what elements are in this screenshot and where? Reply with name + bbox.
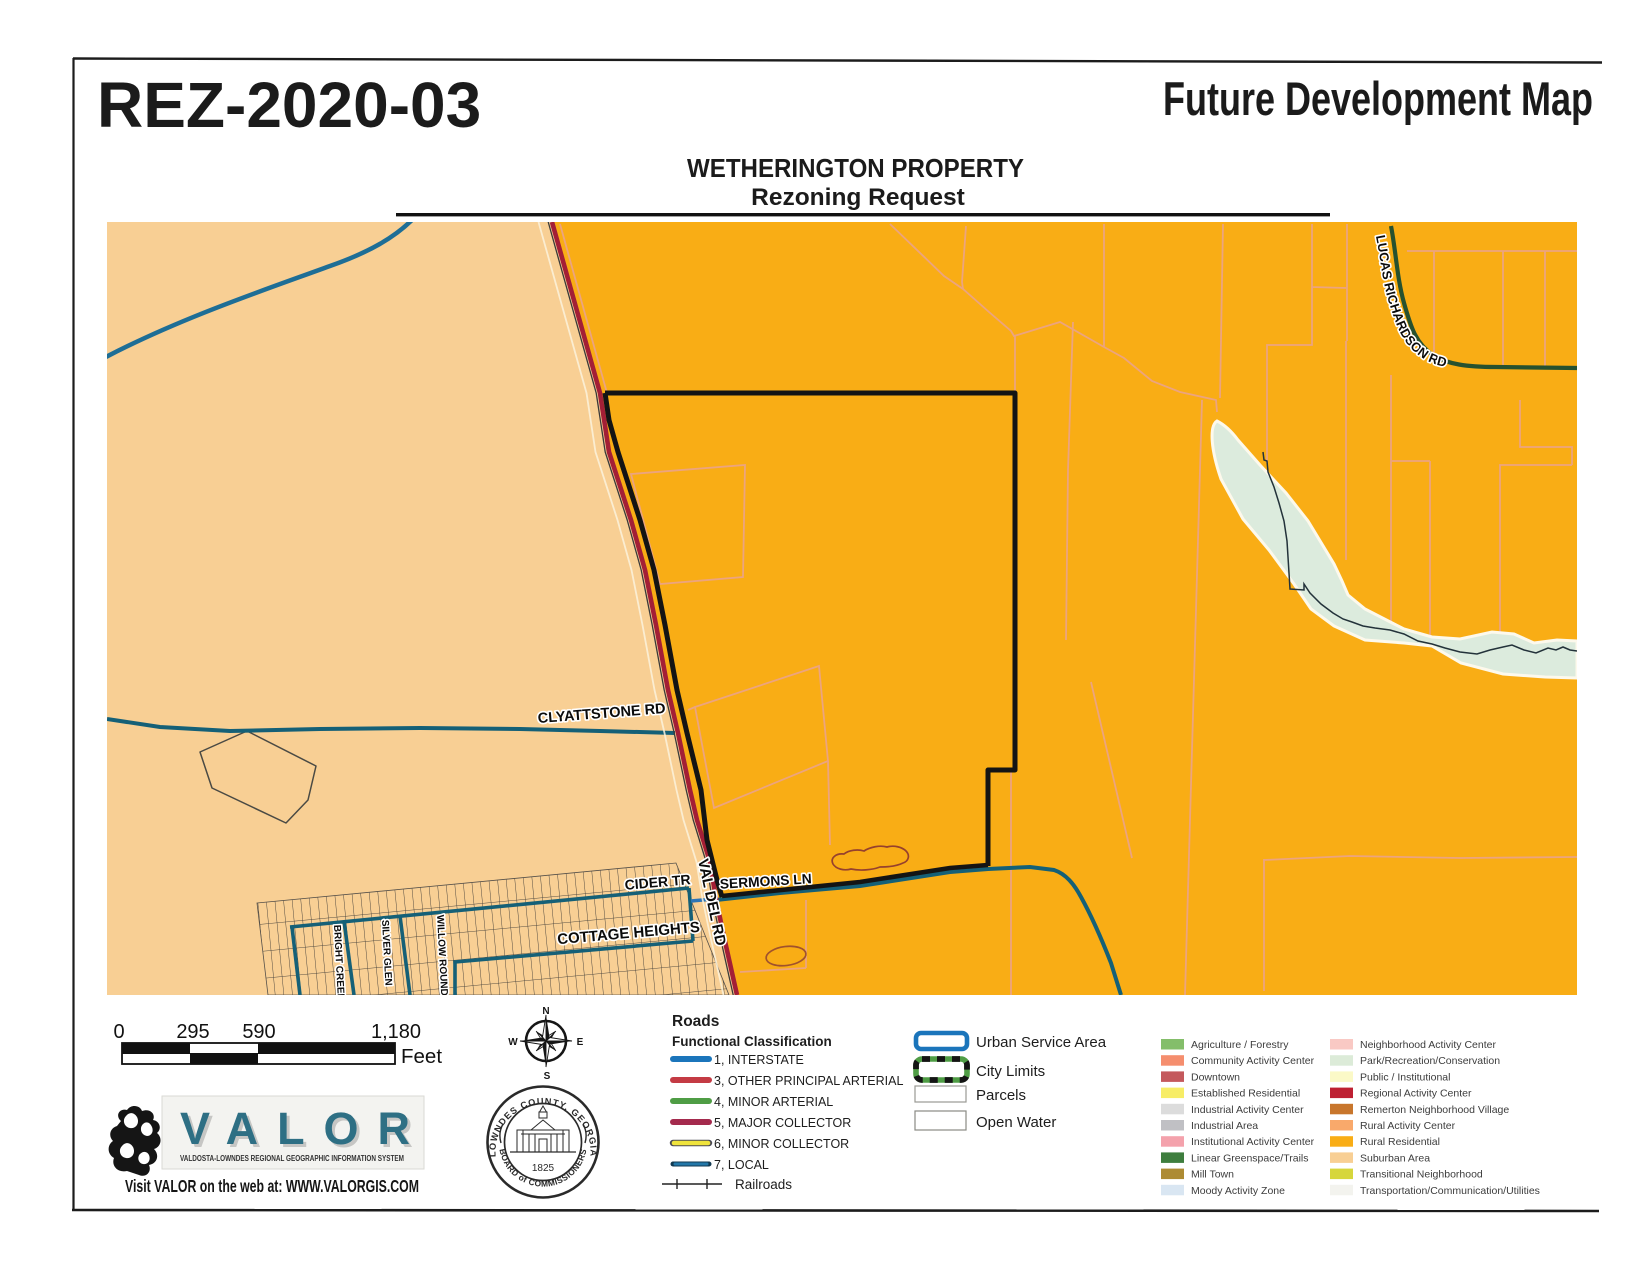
svg-text:Linear Greenspace/Trails: Linear Greenspace/Trails [1191, 1152, 1309, 1164]
svg-text:WETHERINGTON PROPERTY: WETHERINGTON PROPERTY [687, 155, 1024, 183]
svg-text:Transitional Neighborhood: Transitional Neighborhood [1360, 1169, 1483, 1181]
svg-text:VALDOSTA-LOWNDES REGIONAL GEOG: VALDOSTA-LOWNDES REGIONAL GEOGRAPHIC INF… [180, 1154, 404, 1163]
svg-text:Visit VALOR on the web at: WWW: Visit VALOR on the web at: WWW.VALORGIS.… [125, 1176, 419, 1196]
svg-text:Industrial Area: Industrial Area [1191, 1120, 1258, 1132]
svg-text:Roads: Roads [672, 1013, 719, 1030]
svg-text:REZ-2020-03: REZ-2020-03 [97, 69, 481, 141]
svg-text:Downtown: Downtown [1191, 1071, 1240, 1083]
svg-text:Established Residential: Established Residential [1191, 1088, 1300, 1100]
svg-text:Remerton Neighborhood Village: Remerton Neighborhood Village [1360, 1104, 1509, 1116]
svg-text:Park/Recreation/Conservation: Park/Recreation/Conservation [1360, 1055, 1500, 1067]
svg-text:N: N [542, 1006, 549, 1017]
svg-text:Parcels: Parcels [976, 1087, 1026, 1104]
svg-text:Regional Activity Center: Regional Activity Center [1360, 1088, 1472, 1100]
svg-text:Future Development Map: Future Development Map [1163, 72, 1593, 125]
svg-text:Institutional Activity Center: Institutional Activity Center [1191, 1136, 1315, 1148]
svg-text:Rural Activity Center: Rural Activity Center [1360, 1120, 1456, 1132]
svg-text:295: 295 [176, 1021, 209, 1043]
svg-text:Rezoning Request: Rezoning Request [751, 184, 965, 211]
svg-text:1,180: 1,180 [371, 1021, 421, 1043]
svg-text:Public / Institutional: Public / Institutional [1360, 1071, 1450, 1083]
svg-text:Agriculture / Forestry: Agriculture / Forestry [1191, 1039, 1289, 1051]
svg-text:Suburban Area: Suburban Area [1360, 1152, 1430, 1164]
svg-text:Functional Classification: Functional Classification [672, 1034, 832, 1049]
svg-text:Moody Activity Zone: Moody Activity Zone [1191, 1185, 1285, 1197]
svg-text:S: S [544, 1071, 551, 1082]
svg-text:Community Activity Center: Community Activity Center [1191, 1055, 1315, 1067]
svg-text:Open Water: Open Water [976, 1114, 1056, 1131]
svg-text:Industrial Activity Center: Industrial Activity Center [1191, 1104, 1304, 1116]
svg-text:7, LOCAL: 7, LOCAL [714, 1158, 769, 1172]
svg-text:Feet: Feet [401, 1045, 442, 1068]
svg-text:5, MAJOR COLLECTOR: 5, MAJOR COLLECTOR [714, 1116, 851, 1130]
svg-text:Transportation/Communication/U: Transportation/Communication/Utilities [1360, 1185, 1540, 1197]
svg-text:6, MINOR COLLECTOR: 6, MINOR COLLECTOR [714, 1137, 849, 1151]
svg-text:W: W [508, 1037, 518, 1048]
svg-text:3, OTHER PRINCIPAL ARTERIAL: 3, OTHER PRINCIPAL ARTERIAL [714, 1074, 903, 1088]
svg-text:Neighborhood Activity Center: Neighborhood Activity Center [1360, 1039, 1496, 1051]
svg-text:590: 590 [242, 1021, 275, 1043]
svg-text:City Limits: City Limits [976, 1063, 1045, 1080]
svg-text:0: 0 [113, 1021, 124, 1043]
svg-text:Urban Service Area: Urban Service Area [976, 1034, 1107, 1051]
svg-text:1825: 1825 [532, 1163, 555, 1174]
svg-text:Railroads: Railroads [735, 1177, 792, 1192]
svg-text:1, INTERSTATE: 1, INTERSTATE [714, 1053, 804, 1067]
svg-text:Rural Residential: Rural Residential [1360, 1136, 1440, 1148]
svg-text:Mill Town: Mill Town [1191, 1169, 1234, 1181]
svg-text:E: E [577, 1037, 584, 1048]
svg-text:4, MINOR ARTERIAL: 4, MINOR ARTERIAL [714, 1095, 833, 1109]
